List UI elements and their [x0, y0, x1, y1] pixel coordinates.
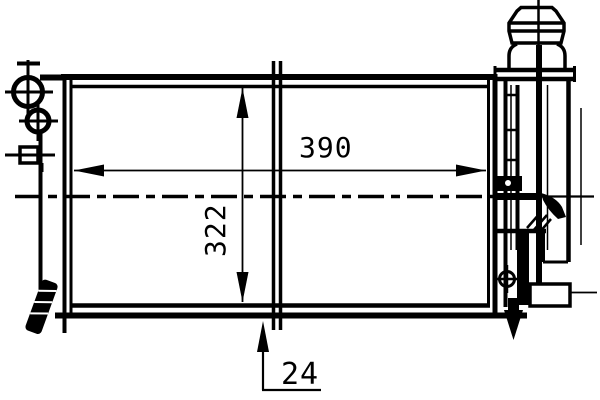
bracket-foot — [530, 284, 570, 306]
tank-collar — [494, 66, 576, 82]
depth-dimension: 24 — [257, 321, 321, 392]
bottom-left-bracket — [24, 279, 58, 336]
depth-arrow-up — [257, 321, 269, 352]
depth-dimension-label: 24 — [281, 357, 319, 392]
radiator-drawing: 390 322 24 — [0, 0, 600, 400]
filler-cap — [509, 0, 564, 46]
bracket-bolt — [494, 265, 521, 293]
width-arrow-right — [456, 165, 486, 177]
technical-drawing-canvas: 390 322 24 — [0, 0, 600, 400]
left-ports — [5, 60, 64, 295]
height-arrow-top — [237, 88, 249, 118]
bottom-pointer — [504, 310, 523, 340]
width-arrow-left — [74, 165, 104, 177]
height-arrow-bottom — [237, 272, 249, 302]
height-dimension-label: 322 — [199, 203, 232, 257]
radiator-body-frame — [55, 74, 527, 333]
bracket-bar — [517, 233, 529, 305]
width-dimension-label: 390 — [299, 131, 353, 164]
